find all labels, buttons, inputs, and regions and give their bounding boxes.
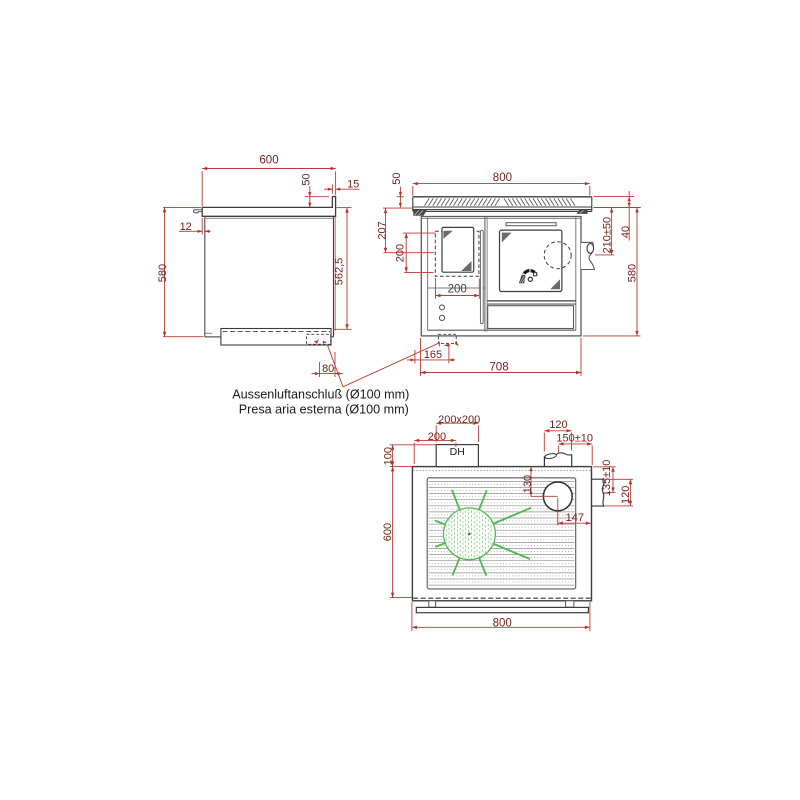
svg-text:120: 120 xyxy=(549,419,567,431)
svg-text:165: 165 xyxy=(424,349,442,361)
svg-text:147: 147 xyxy=(566,512,584,524)
svg-text:80: 80 xyxy=(322,363,334,375)
svg-text:210±50: 210±50 xyxy=(601,217,613,254)
svg-text:130: 130 xyxy=(522,475,534,493)
svg-text:Aussenluftanschluß (Ø100 mm): Aussenluftanschluß (Ø100 mm) xyxy=(232,387,409,401)
svg-text:50: 50 xyxy=(391,172,403,184)
svg-text:800: 800 xyxy=(493,172,512,184)
svg-text:40: 40 xyxy=(620,226,632,238)
svg-text:580: 580 xyxy=(626,264,638,282)
svg-text:580: 580 xyxy=(157,264,169,282)
svg-text:12: 12 xyxy=(180,221,192,233)
svg-text:200: 200 xyxy=(394,244,406,262)
svg-text:207: 207 xyxy=(376,221,388,239)
svg-text:120: 120 xyxy=(620,486,632,504)
svg-text:50: 50 xyxy=(301,173,313,185)
svg-text:Presa aria esterna (Ø100 mm): Presa aria esterna (Ø100 mm) xyxy=(239,402,409,416)
svg-text:150±10: 150±10 xyxy=(556,433,593,445)
svg-text:200: 200 xyxy=(428,431,446,443)
svg-text:100: 100 xyxy=(383,447,395,465)
svg-text:708: 708 xyxy=(489,362,508,374)
svg-text:DH: DH xyxy=(450,446,465,458)
svg-text:800: 800 xyxy=(493,617,512,629)
svg-text:600: 600 xyxy=(259,155,278,167)
svg-text:200: 200 xyxy=(448,284,467,296)
svg-text:15: 15 xyxy=(347,178,359,190)
svg-text:200x200: 200x200 xyxy=(438,414,480,426)
svg-text:562,5: 562,5 xyxy=(334,258,346,286)
svg-text:135±10: 135±10 xyxy=(601,460,613,497)
svg-text:600: 600 xyxy=(382,523,394,541)
